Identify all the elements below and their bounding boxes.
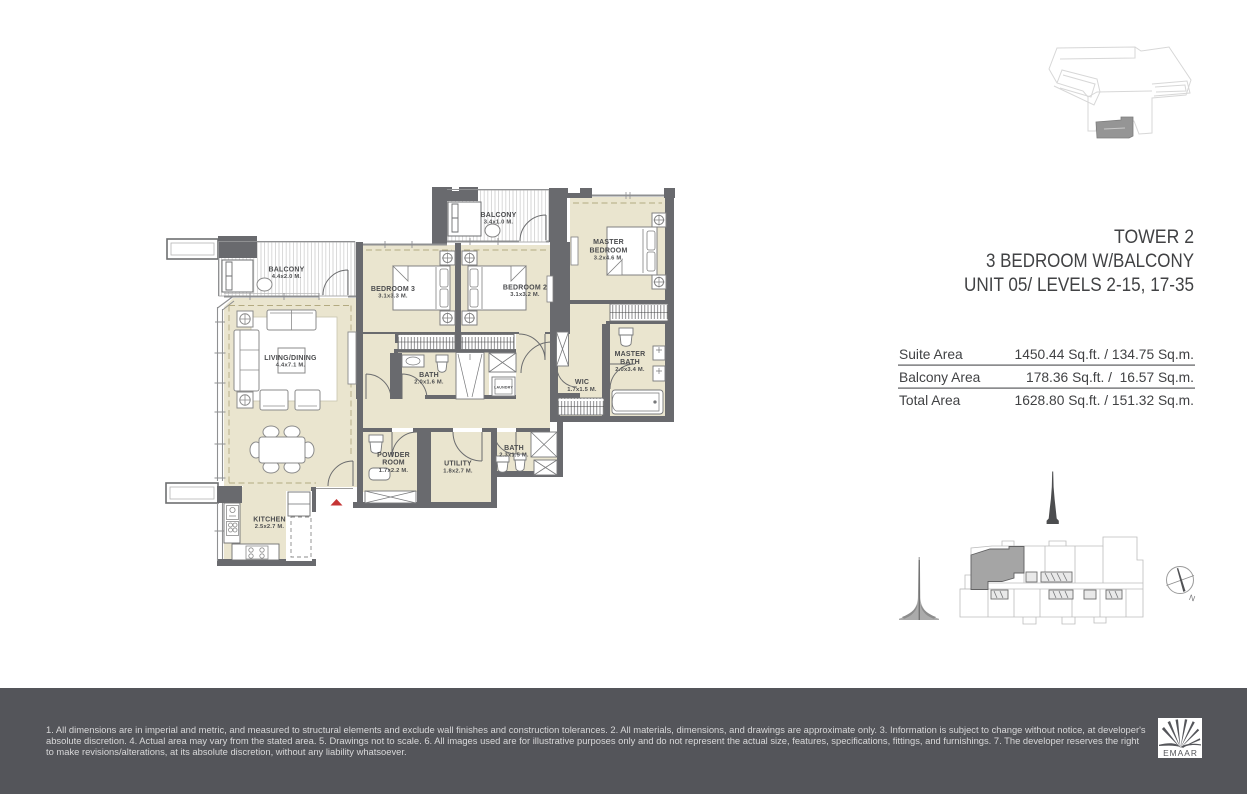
- svg-text:BATH: BATH: [504, 445, 524, 452]
- svg-text:4.4x7.1 M.: 4.4x7.1 M.: [276, 363, 306, 369]
- svg-text:BEDROOM 3: BEDROOM 3: [371, 286, 415, 293]
- svg-text:BATH: BATH: [419, 372, 439, 379]
- svg-text:absolute discretion. 4. Actual: absolute discretion. 4. Actual area may …: [46, 735, 1140, 746]
- svg-text:WIC: WIC: [575, 379, 589, 386]
- svg-text:1628.80 Sq.ft. / 151.32 Sq.m.: 1628.80 Sq.ft. / 151.32 Sq.m.: [1015, 393, 1194, 408]
- svg-text:3.4x1.0 M.: 3.4x1.0 M.: [484, 220, 514, 226]
- svg-text:LIVING/DINING: LIVING/DINING: [264, 355, 317, 362]
- svg-text:KITCHEN: KITCHEN: [253, 517, 286, 524]
- svg-text:BEDROOM 2: BEDROOM 2: [503, 285, 547, 292]
- svg-text:3.1x3.2 M.: 3.1x3.2 M.: [510, 292, 540, 298]
- svg-text:3.2x4.6 M.: 3.2x4.6 M.: [594, 256, 624, 262]
- svg-text:UTILITY: UTILITY: [444, 461, 472, 468]
- svg-text:2.5x2.7 M.: 2.5x2.7 M.: [255, 524, 285, 530]
- svg-text:ROOM: ROOM: [382, 460, 405, 467]
- svg-text:BATH: BATH: [620, 359, 640, 366]
- svg-text:3.1x3.3 M.: 3.1x3.3 M.: [378, 294, 408, 300]
- svg-text:Total Area: Total Area: [899, 393, 961, 408]
- svg-text:1. All dimensions are in imper: 1. All dimensions are in imperial and me…: [46, 724, 1146, 735]
- svg-text:1450.44 Sq.ft. / 134.75 Sq.m.: 1450.44 Sq.ft. / 134.75 Sq.m.: [1015, 347, 1194, 362]
- svg-text:MASTER: MASTER: [615, 351, 646, 358]
- svg-text:2.0x1.6 M.: 2.0x1.6 M.: [414, 380, 444, 386]
- svg-text:LAUNDRY: LAUNDRY: [494, 386, 513, 390]
- svg-text:178.36 Sq.ft. / 16.57 Sq.m.: 178.36 Sq.ft. / 16.57 Sq.m.: [1026, 370, 1194, 385]
- svg-text:to make revisions/alterations,: to make revisions/alterations, at its ab…: [46, 746, 407, 757]
- svg-text:Suite Area: Suite Area: [899, 347, 963, 362]
- svg-text:TOWER 2: TOWER 2: [1114, 226, 1194, 248]
- svg-text:BEDROOM: BEDROOM: [590, 248, 628, 255]
- svg-text:1.8x2.7 M.: 1.8x2.7 M.: [443, 469, 473, 475]
- svg-text:MASTER: MASTER: [593, 239, 624, 246]
- svg-text:BALCONY: BALCONY: [268, 267, 304, 274]
- svg-text:4.4x2.0 M.: 4.4x2.0 M.: [272, 274, 302, 280]
- svg-text:2.3x1.5 M.: 2.3x1.5 M.: [499, 453, 529, 459]
- svg-text:1.7x1.5 M.: 1.7x1.5 M.: [567, 387, 597, 393]
- svg-text:BALCONY: BALCONY: [480, 212, 516, 219]
- svg-text:2.0x3.4 M.: 2.0x3.4 M.: [615, 367, 645, 373]
- svg-text:UNIT 05/ LEVELS 2-15, 17-35: UNIT 05/ LEVELS 2-15, 17-35: [964, 274, 1194, 296]
- svg-text:EMAAR: EMAAR: [1163, 748, 1198, 758]
- svg-text:Balcony Area: Balcony Area: [899, 370, 981, 385]
- svg-text:3 BEDROOM W/BALCONY: 3 BEDROOM W/BALCONY: [986, 250, 1194, 272]
- svg-text:1.7x2.2 M.: 1.7x2.2 M.: [379, 468, 409, 474]
- svg-text:POWDER: POWDER: [377, 452, 410, 459]
